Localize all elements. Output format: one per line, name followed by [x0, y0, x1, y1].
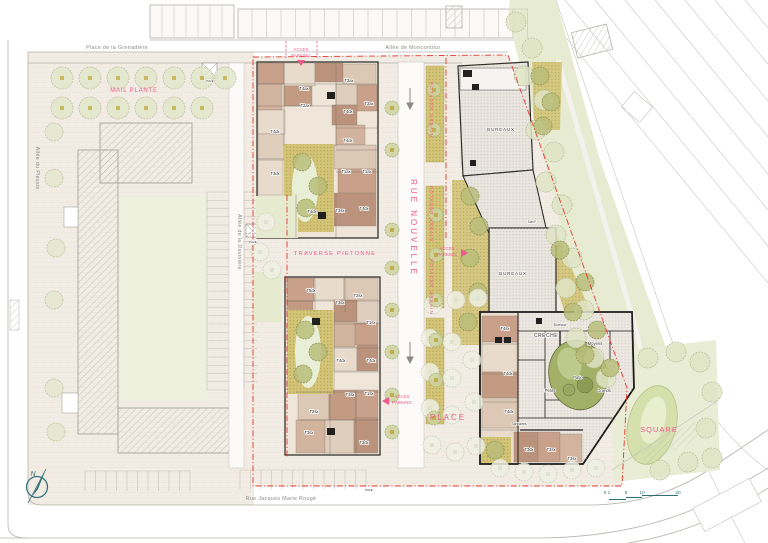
label-bureaux-lower: BUREAUX — [499, 271, 527, 276]
unit-label: T2sx — [353, 293, 363, 298]
unit-label: T4sx — [500, 326, 510, 331]
crosswalk-hatch — [10, 300, 19, 330]
label-place: PLACE — [430, 413, 466, 422]
unit-label: T4ax — [299, 86, 309, 91]
unit-label: T3dx — [359, 440, 369, 445]
label-bureaux-upper: BUREAUX — [487, 127, 515, 132]
unit-label: T3sx — [304, 430, 314, 435]
site-plan-drawing: Place de la Grenadière Allée de Monconto… — [0, 0, 768, 543]
unit-label: T1ax — [362, 169, 372, 174]
site-plan: Place de la Grenadière Allée de Monconto… — [0, 0, 768, 543]
label-moyens: Moyens — [588, 341, 603, 346]
label-traverse-pietonne: TRAVERSE PIETONNE — [294, 251, 376, 257]
unit-label: T3sx — [335, 300, 345, 305]
unit-label: T3sx — [345, 392, 355, 397]
access-parking-south-line1: ACCES — [394, 394, 409, 399]
unit-label: T2sx — [309, 409, 319, 414]
label-creche-bureaux: Bureaux — [554, 323, 567, 327]
unit-label: T5dx — [306, 288, 316, 293]
label-patio: Patio — [573, 375, 583, 380]
unit-label: T3ax — [364, 101, 374, 106]
street-label-moncontour: Allée de Moncontour — [385, 45, 440, 51]
unit-label: T3dx — [270, 171, 280, 176]
label-potager-2: POTAGER URBAIN — [429, 186, 434, 242]
label-potager-1: POTAGER URBAIN — [429, 82, 434, 138]
unit-label: T3ax — [344, 78, 354, 83]
label-petits: Petits — [545, 388, 555, 393]
access-parking-south-line2: PARKING — [392, 400, 412, 405]
access-parking-north-line1: ACCES — [293, 47, 308, 52]
label-pave-1: PAVE — [206, 79, 214, 83]
label-sanitaires: Sanitaires — [511, 422, 526, 426]
label-creche: CRECHE — [534, 333, 558, 339]
label-potager-3: POTAGER URBAIN — [429, 259, 434, 315]
unit-label: T4dx — [343, 109, 353, 114]
street-label-deviniere: Allée de la Devinière — [236, 214, 242, 270]
unit-label: T4dx — [366, 358, 376, 363]
unit-label: T4dx — [359, 206, 369, 211]
unit-label: T1ax — [341, 169, 351, 174]
unit-label: T4dx — [336, 358, 346, 363]
label-pave-2: PAVE — [249, 240, 257, 244]
unit-label: T4dx — [504, 409, 514, 414]
scale-tick-0-1: 0 1 — [604, 490, 611, 496]
unit-label: T3sx — [567, 456, 577, 461]
unit-label: T4dx — [503, 371, 513, 376]
street-label-plessis: Allée du Plessis — [34, 147, 40, 190]
label-pave-3: PAVE — [365, 488, 373, 492]
access-parking-east-line2: PARKING — [437, 252, 457, 257]
scale-tick-5: 5 — [625, 490, 628, 496]
label-square: SQUARE — [640, 425, 678, 434]
unit-label: T4dx — [307, 209, 317, 214]
unit-label: T3sx — [335, 208, 345, 213]
unit-label: T3dx — [524, 447, 534, 452]
access-parking-east-line1: ACCES — [439, 246, 454, 251]
access-parking-north-line2: PARKING — [291, 53, 311, 58]
scale-bar: 0 1 5 10 20 — [604, 490, 681, 500]
street-label-grenadiere: Place de la Grenadière — [86, 45, 148, 51]
label-grands: Grands — [597, 388, 611, 393]
unit-label: T4dx — [343, 138, 353, 143]
street-label-rue-jacques: Rue Jacques Marie Rougé — [246, 496, 317, 502]
unit-label: T2ax — [300, 103, 310, 108]
unit-label: T3sx — [546, 447, 556, 452]
unit-label: T4dx — [270, 129, 280, 134]
unit-label: T1sx — [364, 391, 374, 396]
unit-label: T1sx — [366, 320, 376, 325]
label-mail-plante: MAIL PLANTE — [110, 88, 158, 94]
label-san-f: San.F — [528, 220, 537, 224]
label-rue-nouvelle: RUE NOUVELLE — [409, 179, 418, 277]
